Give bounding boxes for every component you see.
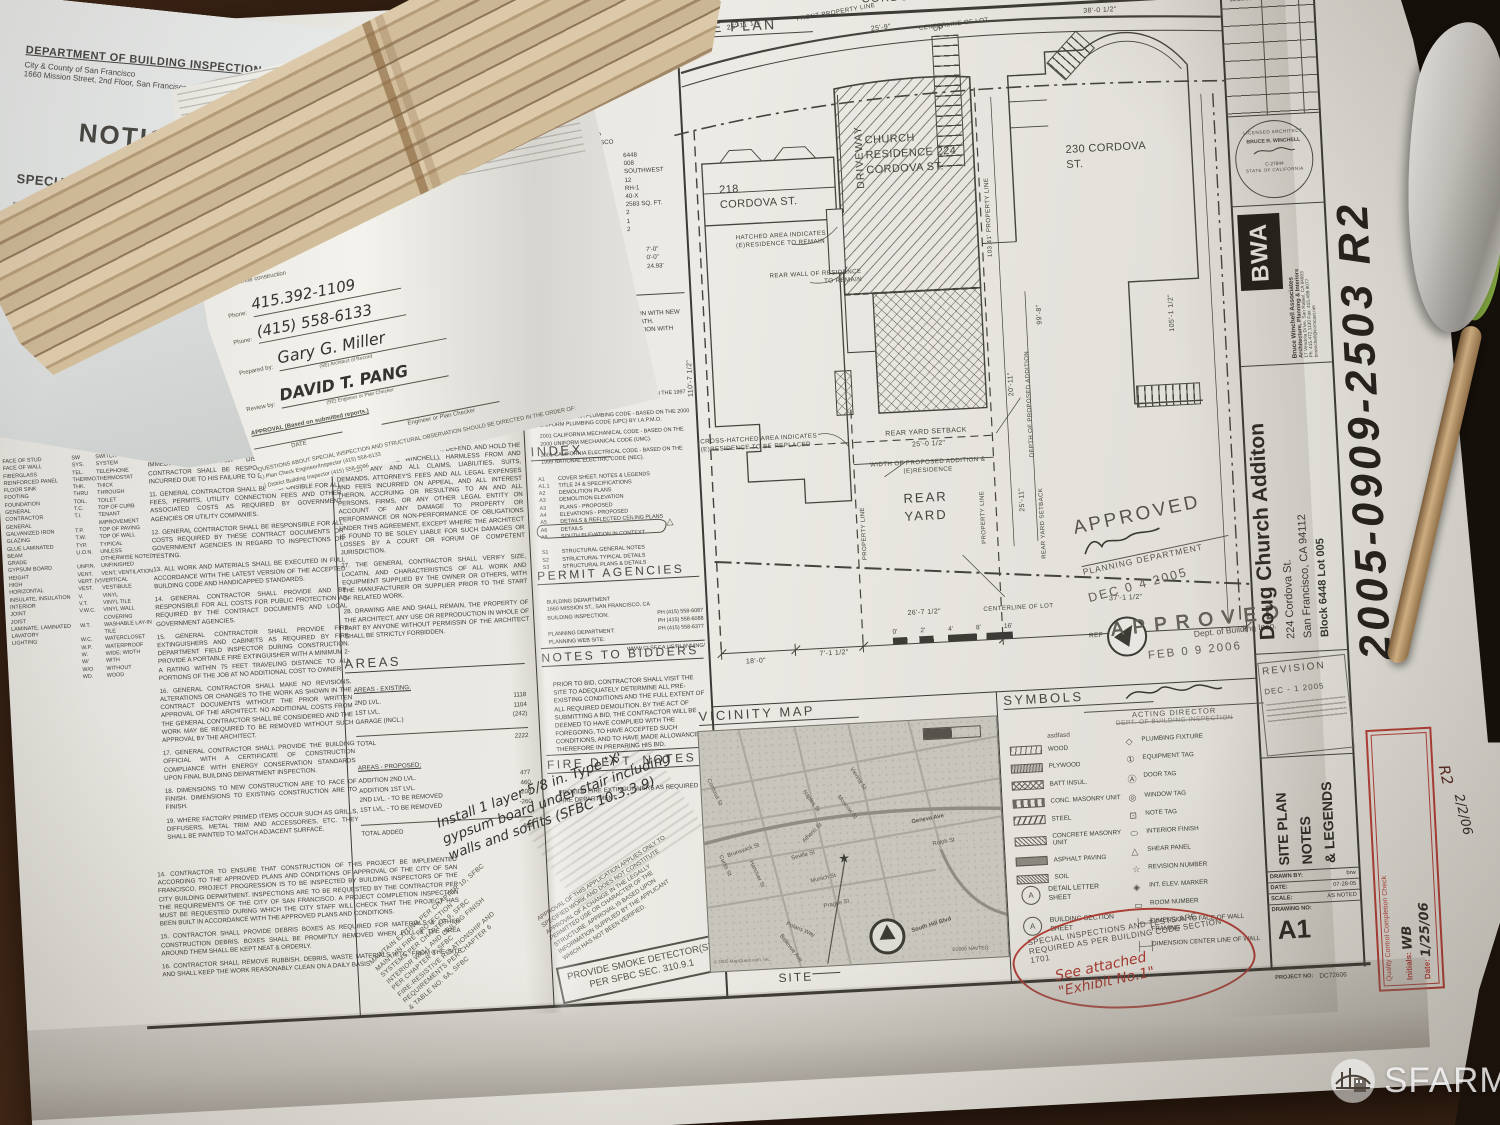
tag-row: ⊡ NOTE TAG	[1129, 804, 1261, 822]
materials-legend: WOOD PLYWOOD BATT INSUL. CONC. M	[1010, 741, 1129, 893]
architect-seal: LICENSED ARCHITECT BRUCE R. WINCHELL C-2…	[1227, 112, 1324, 206]
general-note: 19. WHERE FACTORY PRIMED ITEMS OCCUR SUC…	[166, 807, 359, 842]
qc-date-handwriting: 1/25/06	[1416, 902, 1434, 957]
up-label: UP	[933, 25, 944, 33]
general-note: 14. GENERAL CONTRACTOR SHALL PROVIDE AND…	[155, 586, 348, 629]
site-star-marker: ★	[838, 850, 850, 867]
material-label: WOOD	[1048, 744, 1069, 753]
vicinity-map-panel: VICINITY MAP Geneva AveMunich StPrague S…	[694, 691, 1011, 998]
sheet-ref-row: A DETAIL LETTER SHEET	[1021, 881, 1119, 905]
material-row: BATT INSUL.	[1012, 776, 1124, 791]
revision-triangle-icon: △	[666, 516, 673, 527]
abbrev-col1: FACE OF STUDFACE OF WALLFIBERGLASSREINFO…	[2, 456, 77, 685]
project-no-label: PROJECT NO:	[1275, 973, 1313, 981]
notes-to-bidders-title: NOTES TO BIDDERS	[541, 643, 704, 667]
tag-label: WINDOW TAG	[1144, 790, 1186, 800]
qc-rev-date-handwriting: 2/2/06	[1451, 793, 1475, 837]
firm-block: BWA Bruce Winchell Associates Architectu…	[1232, 202, 1332, 366]
qc-initials-handwriting: WB	[1400, 925, 1416, 950]
general-note: 12. GENERAL CONTRACTOR SHALL BE RESPONSI…	[151, 519, 344, 562]
sfarmls-bridge-icon	[1330, 1058, 1376, 1104]
project-no-row: PROJECT NO: DC72606	[1272, 964, 1368, 986]
qc-rev-handwriting: R2	[1435, 763, 1457, 787]
rear-yard-label: REAR YARD	[903, 486, 979, 526]
revision-stamp-fine-print	[1266, 696, 1348, 726]
bwa-logo: BWA	[1245, 222, 1276, 282]
stray-text: asdfasd	[1047, 732, 1070, 740]
material-row: WOOD	[1010, 741, 1122, 756]
drawing-no: A1	[1269, 911, 1362, 947]
vicinity-map-image: Geneva AveMunich StPrague StSeville StAt…	[697, 715, 1009, 972]
material-label: PLYWOOD	[1049, 761, 1081, 770]
ref-label: REF	[1089, 632, 1104, 640]
vicinity-map-roads	[698, 716, 1008, 971]
field-rows: DRAWN BY:brw DATE:07-28-05 SCALE:AS NOTE…	[1267, 868, 1361, 906]
tag-row: ◇ PLUMBING FIXTURE	[1125, 730, 1257, 748]
sheet-ref-label: DETAIL LETTER SHEET	[1048, 882, 1119, 903]
general-note: 11. GENERAL CONTRACTOR SHALL BE RESPONSI…	[149, 481, 342, 524]
tag-row: ☆ REVISION NUMBER	[1132, 858, 1264, 876]
revision-stamp-title: REVISION	[1262, 658, 1343, 677]
lot-218-label: 218 CORDOVA ST.	[719, 179, 798, 213]
notes-to-bidders-panel: NOTES TO BIDDERS PRIOR TO BID, CONTRACTO…	[541, 640, 710, 756]
tag-label: REVISION NUMBER	[1148, 861, 1207, 872]
material-row: STEEL	[1013, 811, 1125, 826]
general-note: 27. THE GENERAL CONTRACTOR SHALL VERIFY …	[341, 553, 528, 604]
notes-to-bidders-text: PRIOR TO BID, CONTRACTOR SHALL VISIT THE…	[542, 668, 710, 755]
general-note: 28. DRAWING ARE AND SHALL REMAIN, THE PR…	[344, 599, 530, 641]
tag-row: Ⓐ DOOR TAG	[1127, 766, 1259, 786]
revision-date-stamp: REVISION DEC - 1 2005	[1255, 649, 1352, 755]
index-panel: INDEX A1COVER SHEET, NOTES & LEGENDSA1.1…	[530, 425, 701, 573]
symbols-title: SYMBOLS	[1003, 685, 1154, 710]
material-label: CONC. MASONRY UNIT	[1050, 794, 1120, 805]
material-swatch-icon	[1012, 780, 1044, 791]
material-label: STEEL	[1051, 814, 1071, 823]
tag-icon: △	[1131, 846, 1148, 858]
general-notes-column: THE JOB SITE PRIOR TO SUBMITTING A BID O…	[147, 435, 361, 866]
tag-label: PLUMBING FIXTURE	[1141, 733, 1203, 744]
drawing-fields-block: DRAWN BY:brw DATE:07-28-05 SCALE:AS NOTE…	[1267, 867, 1364, 971]
tag-row: ① EQUIPMENT TAG	[1126, 748, 1258, 766]
tag-label: NOTE TAG	[1145, 808, 1177, 818]
site-plan-drawing: CORDOVA STREET 25'-11 1/2" FRONT PROPERT…	[667, 0, 1255, 709]
tag-row: ◎ WINDOW TAG	[1128, 786, 1260, 804]
material-swatch-icon	[1016, 874, 1048, 885]
sheet-title-line1: SITE PLAN	[1271, 761, 1292, 866]
abbrev-col2: SWSWITCHSYS.SYSTEMTEL.TELEPHONETHERMO.TH…	[71, 451, 160, 681]
general-note: 14. CONTRACTOR TO ENSURE THAT CONSTRUCTI…	[157, 856, 460, 929]
tag-icon: ⬭	[1130, 828, 1147, 840]
project-no: DC72606	[1319, 971, 1347, 979]
scale-tick: 16'	[1004, 622, 1013, 629]
scale-tick: 8'	[976, 624, 981, 631]
tag-label: DOOR TAG	[1143, 770, 1176, 780]
abbreviation-table: FACE OF STUDFACE OF WALLFIBERGLASSREINFO…	[2, 451, 160, 685]
tag-label: INTERIOR FINISH	[1146, 825, 1199, 836]
sheet-title-block: SITE PLAN NOTES & LEGENDS	[1261, 753, 1359, 871]
areas-existing-rows: 2ND LVL.11181ST LVL.1104GARAGE (INCL.)(2…	[354, 691, 527, 728]
qc-stamp: Quality Control Completion Check Initial…	[1365, 727, 1445, 992]
material-label: BATT INSUL.	[1050, 778, 1088, 788]
tag-label: SHEAR PANEL	[1147, 843, 1191, 853]
tag-row: ⬭ INTERIOR FINISH	[1130, 822, 1262, 840]
tag-icon: ①	[1126, 754, 1143, 766]
material-label: ASPHALT PAVING	[1053, 854, 1106, 864]
permit-agencies-title: PERMIT AGENCIES	[537, 561, 700, 585]
revision-table: 10/5/05 RESUBMITTAL △ 11/29/05 RESUBMITT…	[1220, 0, 1319, 117]
lot-224-label: CHURCH RESIDENCE 224 CORDOVA ST.	[864, 128, 966, 178]
sheet-title-line2: NOTES	[1294, 760, 1315, 865]
tag-icon: ◎	[1128, 792, 1145, 804]
material-row: PLYWOOD	[1011, 758, 1123, 773]
material-swatch-icon	[1010, 745, 1042, 756]
tag-icon: ⊡	[1129, 810, 1146, 822]
revision-date: 11/29/05	[1221, 0, 1261, 4]
material-swatch-icon	[1012, 798, 1044, 809]
material-swatch-icon	[1013, 815, 1045, 826]
general-note: 17. GENERAL CONTRACTOR SHALL PROVIDE THE…	[163, 740, 356, 783]
material-row: CONC. MASONRY UNIT	[1012, 793, 1124, 808]
photo-of-blueprint: FACE OF STUDFACE OF WALLFIBERGLASSREINFO…	[0, 0, 1500, 1125]
tag-label: ROOM NUMBER	[1150, 897, 1199, 907]
seal-signature	[1250, 144, 1299, 158]
material-swatch-icon	[1014, 836, 1046, 847]
scale-tick: 0'	[892, 628, 897, 635]
tag-label: EQUIPMENT TAG	[1142, 751, 1194, 762]
230-rear-stairs	[1136, 382, 1201, 407]
revision-triangle-icon: △	[1298, 0, 1304, 1]
tag-label: INT. ELEV. MARKER	[1149, 879, 1208, 890]
material-label: CONCRETE MASONRY UNIT	[1052, 828, 1127, 847]
seal-arc-top: LICENSED ARCHITECT	[1235, 127, 1311, 136]
general-note: 15. GENERAL CONTRACTOR SHALL PROVIDE FIR…	[157, 624, 351, 683]
general-note: 13. ALL WORK AND MATERIALS SHALL BE EXEC…	[153, 557, 346, 592]
sfarmls-watermark: SFARMLS	[1330, 1058, 1500, 1104]
project-title-block: Doug Church Additon 224 Cordova St. San …	[1240, 361, 1347, 646]
material-swatch-icon	[1011, 763, 1043, 774]
tag-row: ◈ INT. ELEV. MARKER	[1133, 876, 1265, 894]
scale-tick: 4'	[948, 626, 953, 633]
tag-icon: ◈	[1133, 882, 1150, 894]
tag-icon: ☆	[1132, 864, 1149, 876]
rubber-band	[361, 17, 431, 202]
material-row: ASPHALT PAVING	[1016, 852, 1128, 867]
dim-18: 18'-0"	[746, 657, 767, 665]
site-label: SITE	[778, 969, 813, 985]
material-row: CONCRETE MASONRY UNIT	[1014, 828, 1127, 849]
areas-existing-total: TOTAL2222	[356, 726, 528, 748]
index-title: INDEX	[530, 440, 611, 461]
tag-row: △ SHEAR PANEL	[1131, 840, 1263, 858]
tag-icon: Ⓐ	[1127, 772, 1144, 786]
material-swatch-icon	[1016, 856, 1048, 867]
revision-stamp-date: DEC - 1 2005	[1264, 679, 1345, 696]
areas-title: AREAS	[344, 647, 525, 673]
material-label: SOIL	[1054, 873, 1069, 881]
general-note: 16. GENERAL CONTRACTOR SHALL MAKE NO REV…	[159, 678, 354, 745]
sheet-ref-icon: A	[1021, 885, 1041, 905]
tag-icon: ◇	[1125, 736, 1142, 748]
lot-230-label: 230 CORDOVA ST.	[1065, 139, 1152, 173]
sheet-title-line3: & LEGENDS	[1317, 759, 1338, 864]
revision-label: RESUBMITTAL	[1261, 0, 1298, 2]
site-leader-line	[812, 972, 840, 974]
general-note: 18. DIMENSIONS TO NEW CONSTRUCTION ARE T…	[165, 778, 358, 813]
sfarmls-text: SFARMLS	[1384, 1061, 1500, 1101]
symbols-panel: SYMBOLS asdfasd WOOD PLYWOOD	[1001, 678, 1271, 983]
scale-tick: 2'	[920, 627, 925, 634]
